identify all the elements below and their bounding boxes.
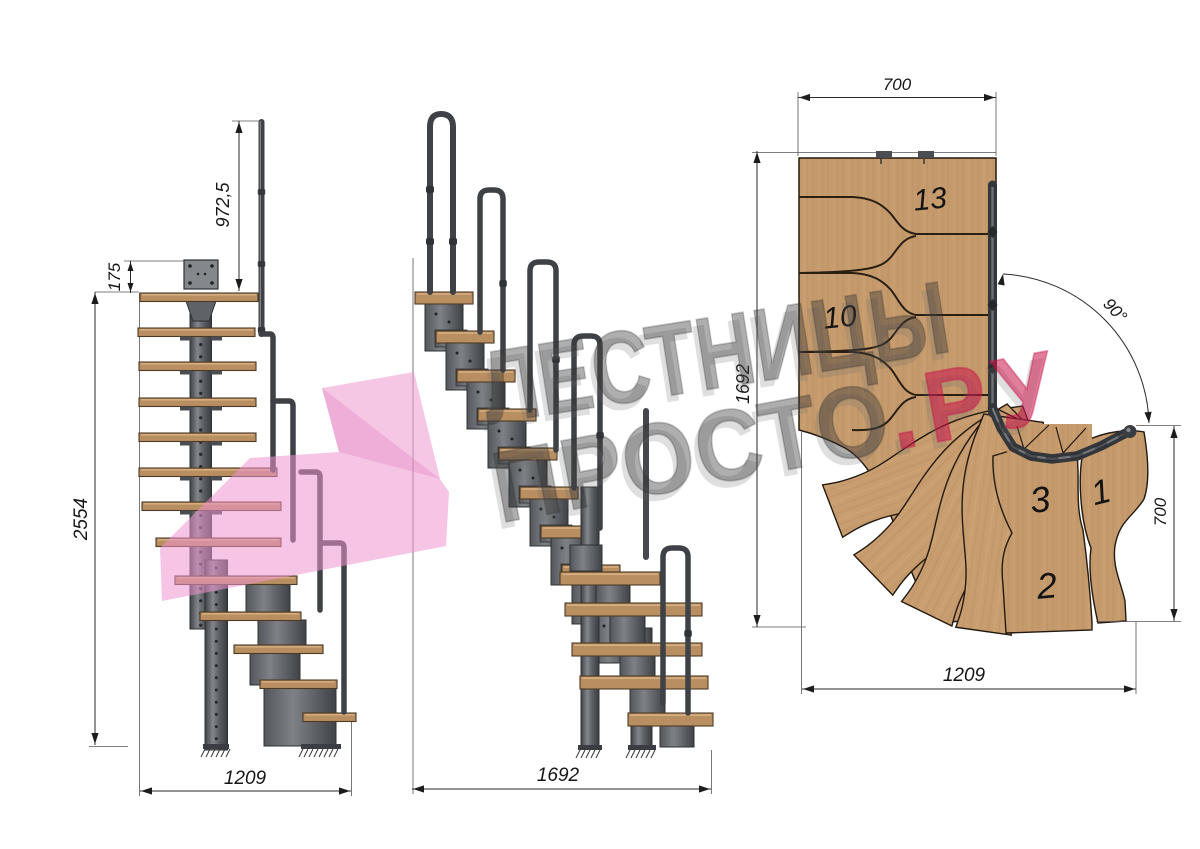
svg-text:700: 700 <box>883 75 912 94</box>
svg-text:2554: 2554 <box>71 498 92 541</box>
svg-text:13: 13 <box>912 181 949 217</box>
svg-text:2: 2 <box>1034 564 1059 607</box>
svg-text:175: 175 <box>105 262 124 291</box>
svg-text:972,5: 972,5 <box>213 181 233 227</box>
svg-text:700: 700 <box>1151 497 1170 526</box>
svg-text:1209: 1209 <box>224 768 267 789</box>
svg-text:1692: 1692 <box>537 765 580 786</box>
svg-text:1209: 1209 <box>943 665 986 686</box>
